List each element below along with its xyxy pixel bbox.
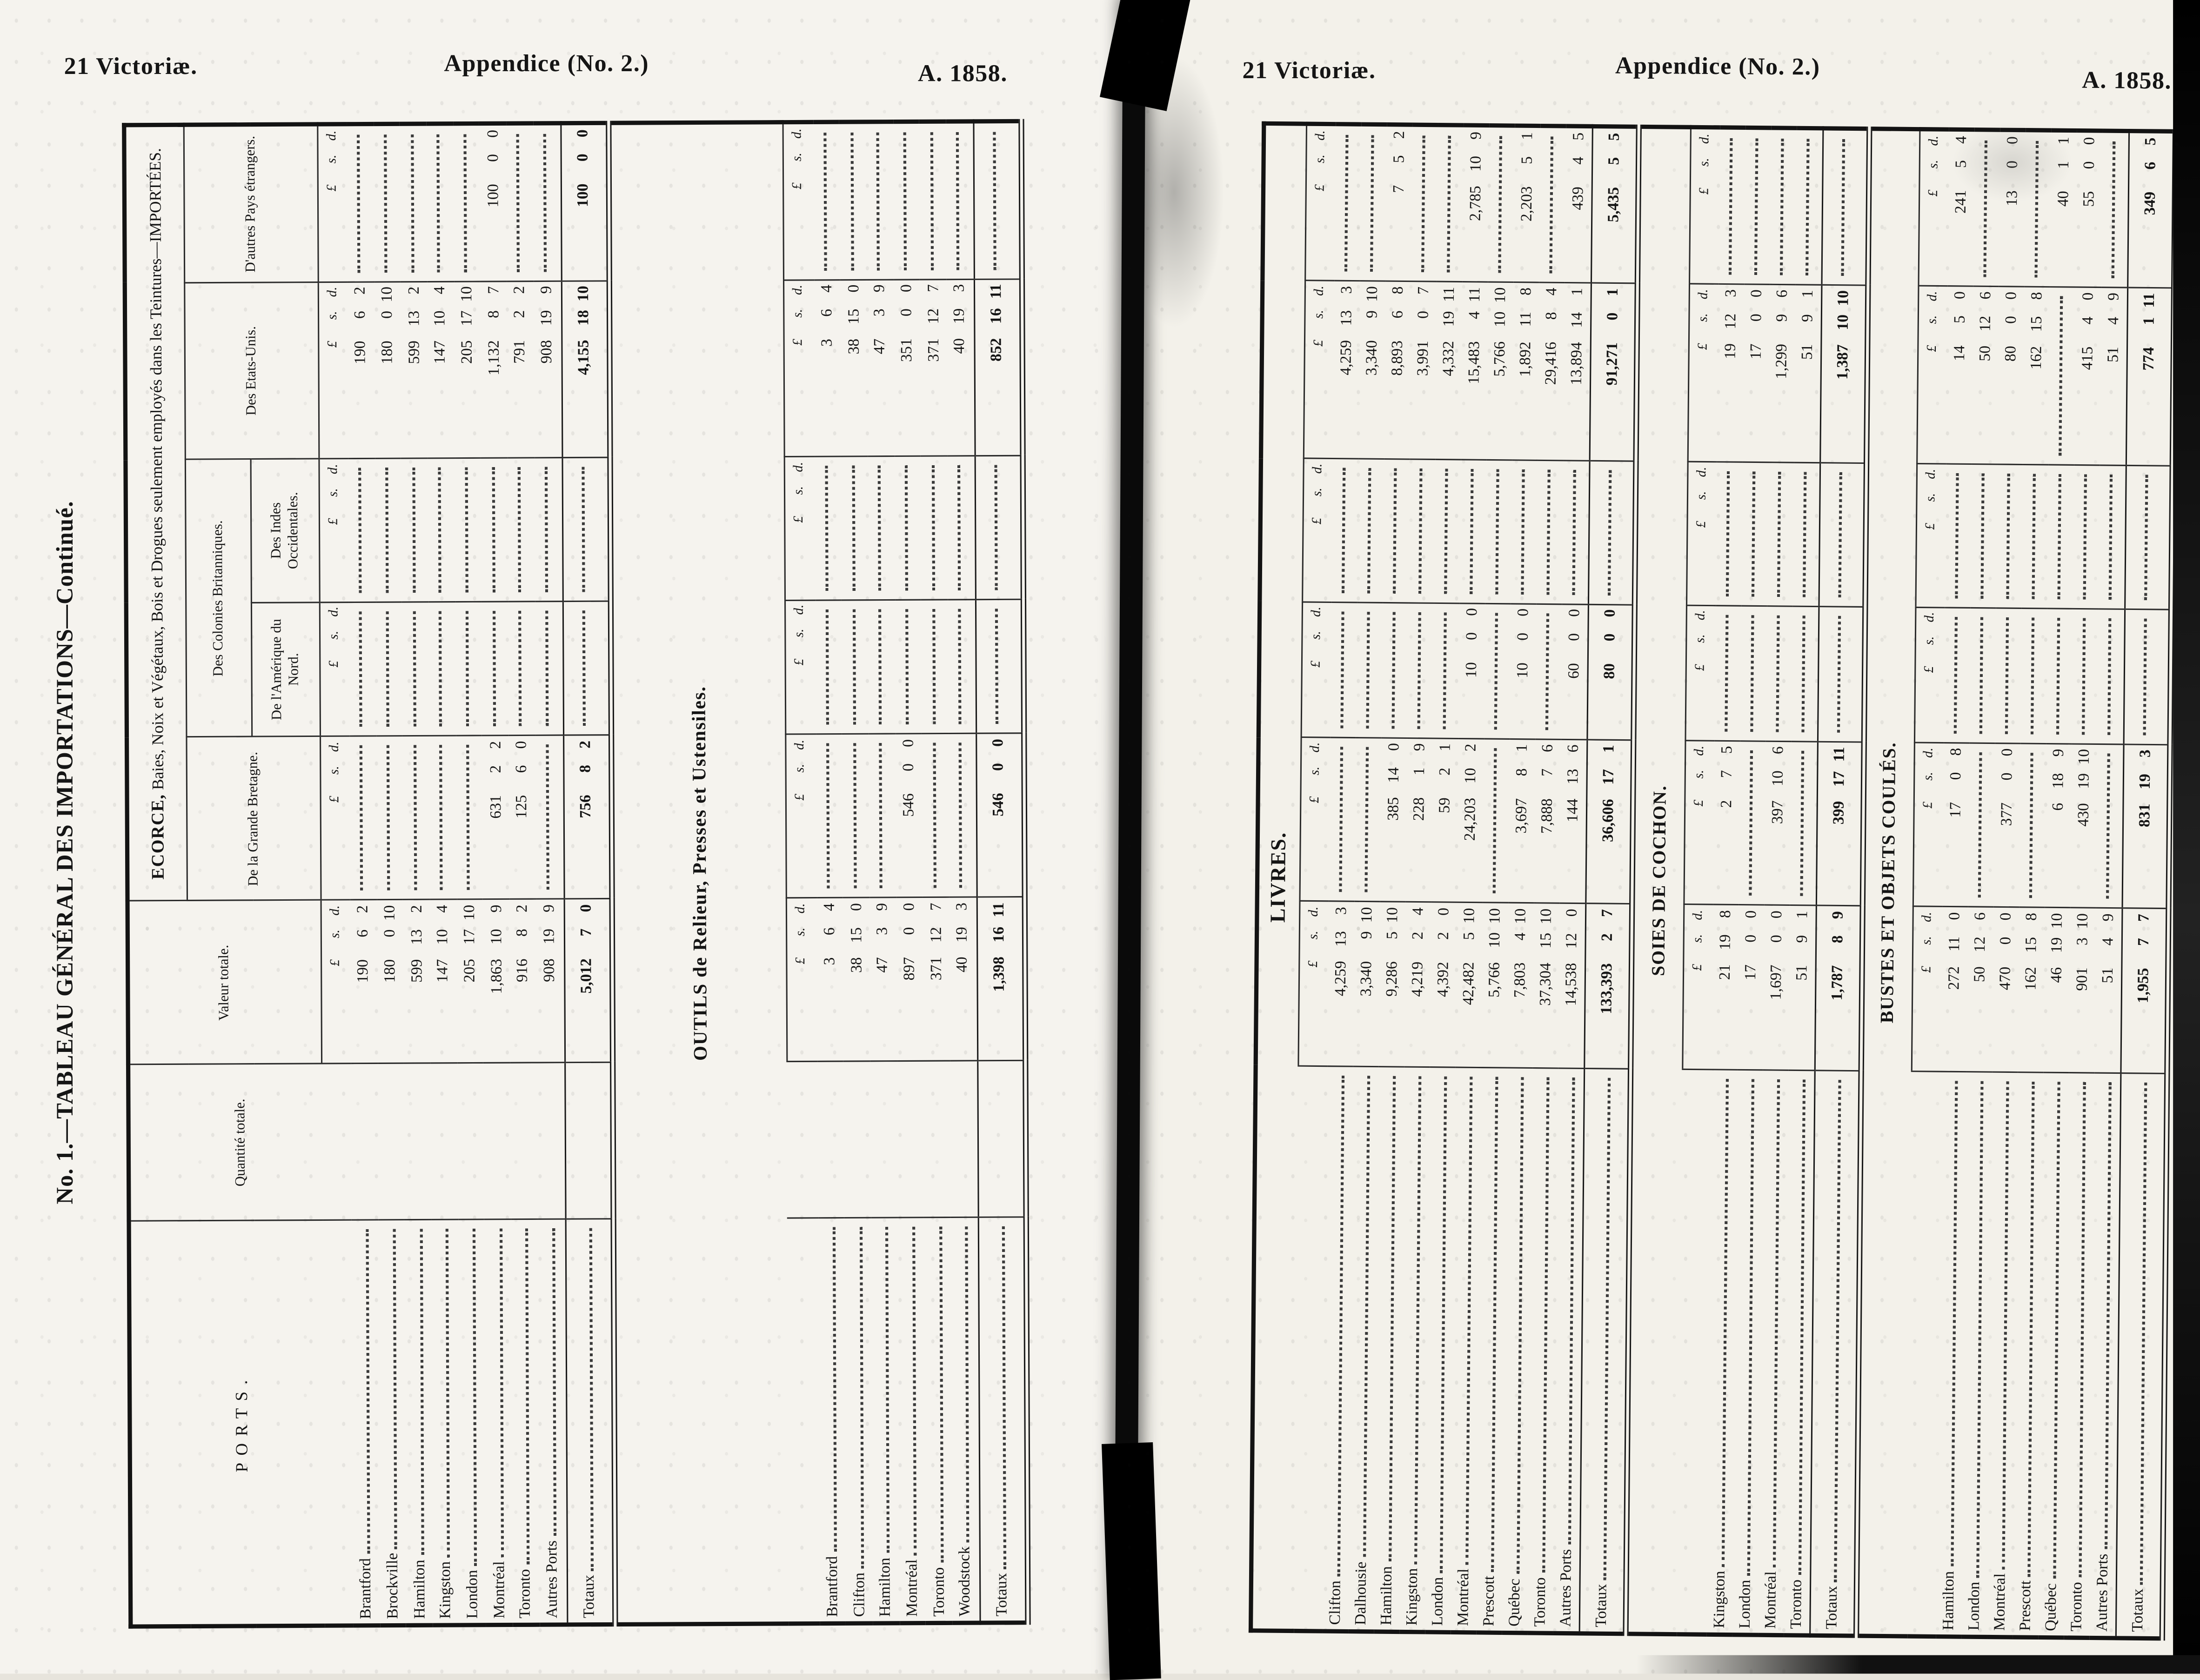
- ports-spacer: [788, 1218, 820, 1624]
- value-valeur-totale: 1,69700: [1762, 905, 1789, 1070]
- value-grande-bretagne: [1738, 741, 1765, 906]
- value-amerique-du-nord: [1969, 608, 1996, 743]
- value-amerique-du-nord: [2072, 609, 2099, 744]
- value-indes-occidentales: [1408, 459, 1435, 602]
- value-autres-pays: [347, 124, 374, 281]
- value-grande-bretagne: 12560: [509, 736, 536, 900]
- value-indes-occidentales: [1434, 460, 1461, 603]
- value-amerique-du-nord: [2046, 608, 2073, 744]
- value-autres-pays: 34965: [2128, 131, 2175, 288]
- value-etats-unis: 1,13287: [481, 281, 508, 458]
- value-indes-occidentales: [1715, 462, 1742, 605]
- value-indes-occidentales: [481, 458, 508, 601]
- value-grande-bretagne: 3991711: [1816, 742, 1863, 906]
- value-grande-bretagne: 63122: [482, 736, 510, 900]
- value-valeur-totale: 37,3041510: [1532, 904, 1559, 1068]
- value-etats-unis: 79122: [507, 281, 535, 458]
- port-label: Hamilton: [871, 1218, 899, 1623]
- value-grande-bretagne: 54600: [896, 734, 923, 898]
- value-autres-pays: [1539, 126, 1566, 283]
- value-valeur-totale: 89700: [896, 898, 923, 1062]
- value-grande-bretagne: 7,88876: [1534, 739, 1561, 904]
- value-amerique-du-nord: [975, 599, 1024, 734]
- value-autres-pays: 5,43555: [1591, 127, 1638, 284]
- value-grande-bretagne: 54600: [976, 734, 1025, 897]
- value-quantite: [897, 1062, 924, 1218]
- port-label: Clifton: [844, 1218, 873, 1624]
- value-valeur-totale: 5191: [1788, 906, 1816, 1071]
- right-running-head-year: A. 1858.: [2082, 67, 2172, 96]
- value-etats-unis: 13,894141: [1564, 283, 1591, 461]
- value-amerique-du-nord: [349, 602, 376, 737]
- value-etats-unis: 774111: [2126, 288, 2174, 466]
- value-valeur-totale: 19062: [350, 900, 378, 1064]
- value-amerique-du-nord: [562, 601, 611, 736]
- value-autres-pays: [1411, 125, 1438, 282]
- currency-header: £s.d.: [1917, 286, 1948, 464]
- value-indes-occidentales: [401, 459, 429, 602]
- value-valeur-totale: 1,863109: [483, 900, 511, 1064]
- value-amerique-du-nord: [508, 601, 535, 736]
- value-grande-bretagne: [1789, 742, 1817, 906]
- col-header-quantite: Quantité totale.: [128, 1064, 352, 1221]
- value-indes-occidentales: [508, 458, 535, 601]
- col-header-autres-pays: D'autres Pays étrangers.: [184, 124, 318, 282]
- port-label: Toronto: [1783, 1070, 1814, 1635]
- right-import-table: LIVRES.£s.d.£s.d.£s.d.£s.d.£s.d.£s.d.Cli…: [1249, 121, 2178, 1641]
- port-label: Kingston: [431, 1220, 460, 1626]
- value-grande-bretagne: 24,203102: [1457, 739, 1484, 904]
- value-indes-occidentales: [1331, 459, 1358, 602]
- value-amerique-du-nord: [895, 599, 922, 735]
- value-amerique-du-nord: [535, 601, 563, 736]
- value-amerique-du-nord: 1000: [1458, 603, 1485, 739]
- value-valeur-totale: 5,01270: [564, 899, 613, 1063]
- value-indes-occidentales: [1766, 462, 1793, 606]
- value-autres-pays: [1360, 124, 1387, 281]
- left-running-head-appendice: Appendice (No. 2.): [444, 50, 649, 78]
- value-autres-pays: 10000: [480, 123, 507, 281]
- value-etats-unis: 5191: [1793, 285, 1821, 463]
- value-amerique-du-nord: [1484, 603, 1511, 739]
- value-grande-bretagne: [869, 734, 896, 898]
- value-valeur-totale: 38150: [843, 898, 870, 1062]
- col-header-amerique-nord: De l'Amérique du Nord.: [251, 602, 320, 737]
- value-grande-bretagne: 831193: [2122, 744, 2170, 909]
- value-valeur-totale: 364: [816, 898, 844, 1062]
- currency-header: £s.d.: [786, 898, 817, 1062]
- col-header-grande-bretagne: De la Grande Bretagne.: [187, 737, 321, 901]
- value-indes-occidentales: [2125, 466, 2173, 609]
- port-label: Toronto: [924, 1218, 952, 1623]
- value-grande-bretagne: [349, 736, 377, 900]
- value-grande-bretagne: [2096, 744, 2124, 909]
- value-etats-unis: 35100: [893, 279, 921, 456]
- totaux-label: Totaux: [565, 1219, 615, 1625]
- port-label: London: [458, 1219, 486, 1625]
- value-autres-pays: [813, 122, 840, 280]
- value-autres-pays: [973, 121, 1022, 279]
- currency-header: £s.d.: [319, 459, 349, 602]
- port-label: Toronto: [511, 1219, 540, 1625]
- currency-header: £s.d.: [1682, 905, 1712, 1070]
- value-valeur-totale: 1700: [1737, 905, 1764, 1070]
- value-grande-bretagne: [922, 734, 950, 898]
- value-quantite: [787, 1062, 818, 1218]
- value-autres-pays: [453, 123, 481, 281]
- port-label: Autres Ports: [538, 1219, 567, 1625]
- totaux-label: Totaux: [1579, 1068, 1631, 1634]
- value-valeur-totale: 47000: [1992, 908, 2019, 1072]
- left-table-wrap: PORTS. Quantité totale. Valeur totale. E…: [122, 119, 1031, 1629]
- value-grande-bretagne: 75682: [563, 736, 612, 899]
- value-indes-occidentales: [375, 459, 402, 602]
- right-table-body: LIVRES.£s.d.£s.d.£s.d.£s.d.£s.d.£s.d.Cli…: [1251, 123, 2175, 1638]
- value-grande-bretagne: [1355, 738, 1382, 903]
- value-quantite: [377, 1064, 405, 1220]
- value-valeur-totale: 133,39327: [1585, 904, 1632, 1069]
- value-amerique-du-nord: [375, 602, 402, 737]
- value-etats-unis: 5,7661010: [1486, 282, 1513, 461]
- value-etats-unis: 147104: [427, 281, 455, 459]
- value-amerique-du-nord: [815, 599, 842, 735]
- value-etats-unis: 3,99107: [1410, 281, 1437, 460]
- value-valeur-totale: 4,21924: [1404, 903, 1431, 1067]
- value-etats-unis: 162158: [2023, 287, 2050, 465]
- ports-spacer: [1677, 1069, 1711, 1634]
- totaux-label: Totaux: [2116, 1073, 2167, 1639]
- value-valeur-totale: 42,482510: [1456, 903, 1483, 1068]
- port-label: Montréal: [897, 1218, 926, 1623]
- value-indes-occidentales: [1792, 463, 1819, 606]
- value-autres-pays: 2,20351: [1514, 126, 1541, 283]
- value-etats-unis: 50126: [1972, 287, 1999, 465]
- right-running-head-appendice: Appendice (No. 2.): [1615, 52, 1820, 82]
- value-indes-occidentales: [1562, 461, 1590, 604]
- value-etats-unis: 180010: [374, 281, 401, 459]
- value-grande-bretagne: 144136: [1559, 739, 1587, 904]
- value-valeur-totale: 1,3981611: [976, 897, 1025, 1061]
- value-indes-occidentales: [1357, 459, 1384, 602]
- value-autres-pays: [1795, 128, 1823, 285]
- value-quantite: [977, 1061, 1026, 1218]
- left-import-table: PORTS. Quantité totale. Valeur totale. E…: [122, 119, 1031, 1629]
- value-amerique-du-nord: 1000: [1510, 603, 1537, 739]
- value-grande-bretagne: 5921: [1431, 738, 1458, 903]
- value-etats-unis: 1,29996: [1767, 285, 1794, 463]
- value-valeur-totale: 1,95577: [2121, 909, 2168, 1073]
- value-autres-pays: [919, 121, 947, 279]
- value-etats-unis: 91,27101: [1590, 283, 1638, 462]
- currency-header: £s.d.: [1683, 741, 1714, 905]
- scan-edge-bottom: [1637, 1655, 2200, 1674]
- value-amerique-du-nord: [1535, 604, 1562, 740]
- value-etats-unis: 371127: [920, 279, 948, 456]
- value-indes-occidentales: [2073, 465, 2100, 609]
- totaux-label: Totaux: [978, 1217, 1028, 1623]
- currency-header: £s.d.: [318, 282, 348, 459]
- value-autres-pays: 5500: [2076, 131, 2103, 288]
- currency-header: £s.d.: [1916, 464, 1946, 607]
- value-grande-bretagne: [2019, 743, 2046, 908]
- value-amerique-du-nord: [842, 599, 869, 735]
- value-amerique-du-nord: [1714, 605, 1741, 741]
- value-indes-occidentales: [348, 459, 376, 602]
- value-quantite: [564, 1063, 613, 1219]
- value-amerique-du-nord: [1407, 602, 1434, 738]
- value-amerique-du-nord: 6000: [1561, 604, 1588, 740]
- value-amerique-du-nord: [2098, 609, 2125, 744]
- totals-row: Totaux5,01270756824,155181010000: [560, 123, 615, 1625]
- value-valeur-totale: 180010: [377, 900, 404, 1064]
- currency-header: £s.d.: [782, 122, 814, 280]
- value-amerique-du-nord: [1995, 608, 2022, 743]
- col-header-valeur: Valeur totale.: [127, 900, 322, 1065]
- value-quantite: [537, 1063, 565, 1219]
- value-valeur-totale: 3,340910: [1353, 902, 1380, 1067]
- port-label: Autres Ports: [2090, 1073, 2121, 1638]
- value-amerique-du-nord: [2124, 609, 2171, 745]
- value-grande-bretagne: [456, 736, 483, 900]
- value-grande-bretagne: 3,69781: [1508, 739, 1535, 904]
- value-indes-occidentales: [841, 457, 869, 600]
- binding-mark-bottom: [1102, 1442, 1161, 1680]
- port-label: Hamilton: [405, 1220, 433, 1626]
- value-grande-bretagne: [1483, 739, 1510, 904]
- value-indes-occidentales: [1996, 464, 2023, 608]
- value-amerique-du-nord: [1739, 605, 1766, 741]
- value-amerique-du-nord: [428, 601, 455, 736]
- currency-header: £s.d.: [1300, 737, 1331, 902]
- value-autres-pays: [946, 121, 974, 279]
- value-indes-occidentales: [455, 458, 482, 601]
- port-label: Montréal: [485, 1219, 513, 1625]
- value-autres-pays: [1769, 128, 1796, 285]
- value-indes-occidentales: [1383, 459, 1410, 602]
- currency-header: £s.d.: [321, 736, 350, 900]
- value-valeur-totale: 9,286510: [1379, 902, 1406, 1067]
- value-quantite: [817, 1062, 844, 1218]
- value-etats-unis: 8,89368: [1384, 281, 1411, 460]
- value-etats-unis: 19062: [348, 281, 375, 459]
- value-indes-occidentales: [947, 456, 975, 599]
- value-valeur-totale: 14,538120: [1558, 904, 1586, 1069]
- value-etats-unis: 8521611: [974, 279, 1023, 456]
- value-amerique-du-nord: [1382, 602, 1409, 738]
- value-amerique-du-nord: [948, 599, 976, 734]
- value-valeur-totale: 147104: [430, 900, 457, 1064]
- value-etats-unis: 4,1551810: [561, 281, 610, 458]
- value-autres-pays: [893, 121, 920, 279]
- value-etats-unis: 40193: [947, 279, 975, 456]
- value-quantite: [351, 1064, 378, 1220]
- value-amerique-du-nord: [1765, 606, 1792, 742]
- value-indes-occidentales: [868, 456, 895, 599]
- value-valeur-totale: 901310: [2069, 908, 2096, 1073]
- value-indes-occidentales: [1485, 460, 1512, 603]
- value-etats-unis: 4739: [867, 280, 894, 457]
- value-amerique-du-nord: 8000: [1587, 604, 1635, 740]
- value-etats-unis: 19123: [1716, 284, 1743, 462]
- value-autres-pays: [1718, 127, 1745, 285]
- currency-header: £s.d.: [785, 600, 816, 735]
- value-quantite: [484, 1063, 511, 1219]
- currency-header: £s.d.: [1305, 124, 1336, 281]
- scan-edge-strip: [2173, 0, 2200, 1673]
- currency-header: £s.d.: [783, 280, 815, 457]
- value-etats-unis: 38150: [840, 280, 868, 457]
- value-amerique-du-nord: [482, 601, 509, 736]
- value-amerique-du-nord: [1817, 606, 1865, 742]
- port-label: Brantford: [818, 1218, 846, 1624]
- value-etats-unis: 908199: [534, 281, 562, 458]
- value-indes-occidentales: [1971, 464, 1998, 608]
- col-header-ports: PORTS.: [129, 1220, 354, 1626]
- section-title: OUTILS de Relieur, Presses et Ustensiles…: [609, 122, 789, 1625]
- value-etats-unis: 364: [814, 280, 841, 457]
- currency-header: £s.d.: [1913, 743, 1944, 907]
- currency-header: £s.d.: [318, 124, 348, 282]
- value-grande-bretagne: [1968, 743, 1995, 908]
- value-amerique-du-nord: [868, 599, 895, 735]
- value-etats-unis: 8000: [1997, 287, 2024, 465]
- value-valeur-totale: 50126: [1966, 907, 1993, 1072]
- value-etats-unis: 3,340910: [1358, 281, 1385, 459]
- value-autres-pays: [374, 124, 401, 281]
- value-quantite: [870, 1062, 898, 1218]
- right-running-head-victoriae: 21 Victoriæ.: [1243, 57, 1376, 85]
- value-grande-bretagne: 4301910: [2070, 744, 2097, 909]
- value-autres-pays: [506, 123, 534, 281]
- ports-spacer: [1293, 1066, 1327, 1631]
- value-amerique-du-nord: [2020, 608, 2047, 744]
- value-autres-pays: [840, 122, 867, 280]
- value-amerique-du-nord: [1331, 602, 1357, 738]
- value-quantite: [457, 1064, 485, 1220]
- currency-header: £s.d.: [1298, 902, 1329, 1066]
- value-indes-occidentales: [1945, 464, 1972, 607]
- value-etats-unis: 1450: [1946, 286, 1973, 464]
- value-quantite: [843, 1062, 871, 1218]
- value-autres-pays: [400, 124, 428, 281]
- value-valeur-totale: 162158: [2018, 908, 2045, 1072]
- value-indes-occidentales: [1588, 461, 1636, 605]
- value-quantite: [431, 1064, 458, 1220]
- currency-header: £s.d.: [1685, 605, 1715, 741]
- value-grande-bretagne: 6189: [2045, 744, 2072, 909]
- currency-header: £s.d.: [320, 602, 349, 737]
- document-title: No. 1.—TABLEAU GÉNÉRAL DES IMPORTATIONS—…: [37, 346, 94, 1359]
- value-valeur-totale: 272110: [1941, 907, 1968, 1072]
- value-valeur-totale: 5149: [2094, 909, 2122, 1073]
- value-valeur-totale: 2051710: [456, 900, 484, 1064]
- value-grande-bretagne: 275: [1712, 741, 1739, 905]
- left-table-header: PORTS. Quantité totale. Valeur totale. E…: [124, 124, 354, 1626]
- value-valeur-totale: 461910: [2043, 908, 2070, 1073]
- value-indes-occidentales: [535, 458, 562, 601]
- ports-spacer: [1907, 1071, 1941, 1636]
- currency-header: £s.d.: [1687, 284, 1718, 462]
- commodity-group-title: ECORCE, Baies, Noix et Végétaux, Bois et…: [124, 125, 187, 901]
- value-grande-bretagne: 22819: [1406, 738, 1433, 903]
- port-label: Brantford: [352, 1220, 380, 1626]
- left-running-head-year: A. 1858.: [918, 60, 1008, 88]
- value-etats-unis: 4,3321911: [1435, 282, 1462, 460]
- value-indes-occidentales: [1741, 462, 1768, 606]
- value-indes-occidentales: [815, 457, 842, 600]
- value-grande-bretagne: [429, 736, 457, 900]
- value-grande-bretagne: [403, 736, 430, 900]
- value-autres-pays: [2101, 131, 2129, 288]
- left-running-head-victoriae: 21 Victoriæ.: [64, 53, 198, 81]
- value-indes-occidentales: [562, 458, 611, 601]
- value-amerique-du-nord: [1791, 606, 1818, 742]
- value-autres-pays: [1437, 125, 1464, 282]
- value-valeur-totale: 4,259133: [1328, 902, 1355, 1066]
- currency-header: £s.d.: [1303, 458, 1333, 602]
- value-valeur-totale: 371127: [923, 898, 950, 1062]
- value-indes-occidentales: [921, 456, 948, 599]
- value-autres-pays: [1488, 126, 1515, 283]
- totaux-label: Totaux: [1809, 1070, 1860, 1636]
- value-grande-bretagne: 37700: [1993, 743, 2020, 908]
- value-amerique-du-nord: [1433, 603, 1460, 739]
- value-etats-unis: 1,892118: [1512, 282, 1539, 461]
- value-grande-bretagne: 385140: [1380, 738, 1407, 903]
- port-label: Autres Ports: [1553, 1068, 1585, 1633]
- col-header-indes: Des Indes Occidentales.: [251, 459, 320, 602]
- value-etats-unis: 599132: [401, 281, 428, 459]
- value-autres-pays: [866, 122, 894, 280]
- col-header-etats-unis: Des Etats-Unis.: [185, 282, 319, 460]
- value-etats-unis: [2049, 287, 2076, 465]
- currency-header: £s.d.: [1689, 127, 1719, 284]
- currency-header: £s.d.: [1912, 907, 1942, 1071]
- value-valeur-totale: 21198: [1711, 905, 1738, 1070]
- value-indes-occidentales: [975, 456, 1023, 599]
- scanned-document: 21 Victoriæ. Appendice (No. 2.) A. 1858.…: [0, 0, 2200, 1673]
- currency-header: £s.d.: [1304, 281, 1334, 459]
- currency-header: £s.d.: [1686, 462, 1716, 605]
- value-amerique-du-nord: [922, 599, 949, 734]
- value-autres-pays: [533, 123, 561, 281]
- scan-speckle: [1953, 122, 2072, 202]
- value-etats-unis: 5149: [2100, 288, 2128, 466]
- value-indes-occidentales: [894, 456, 922, 599]
- value-quantite: [404, 1064, 432, 1220]
- totals-row: Totaux1,3981611546008521611: [973, 121, 1028, 1623]
- value-autres-pays: 43945: [1565, 126, 1593, 283]
- value-grande-bretagne: 36,606171: [1586, 740, 1633, 904]
- value-indes-occidentales: [1460, 460, 1487, 603]
- value-valeur-totale: 5,7661010: [1481, 903, 1508, 1068]
- right-table-wrap: LIVRES.£s.d.£s.d.£s.d.£s.d.£s.d.£s.d.Cli…: [1249, 121, 2173, 1641]
- value-autres-pays: [1334, 124, 1361, 281]
- value-valeur-totale: 7,803410: [1507, 904, 1534, 1068]
- value-amerique-du-nord: [455, 601, 482, 736]
- value-autres-pays: 752: [1385, 125, 1412, 282]
- currency-header: £s.d.: [1919, 129, 1949, 287]
- currency-header: £s.d.: [784, 457, 815, 600]
- currency-header: £s.d.: [785, 735, 816, 898]
- value-indes-occidentales: [428, 459, 455, 602]
- value-valeur-totale: 908199: [536, 899, 564, 1063]
- value-amerique-du-nord: [1944, 607, 1971, 743]
- value-autres-pays: [1744, 127, 1771, 285]
- value-grande-bretagne: [535, 736, 563, 899]
- value-etats-unis: 41540: [2074, 288, 2101, 466]
- port-label: Brockville: [378, 1220, 407, 1626]
